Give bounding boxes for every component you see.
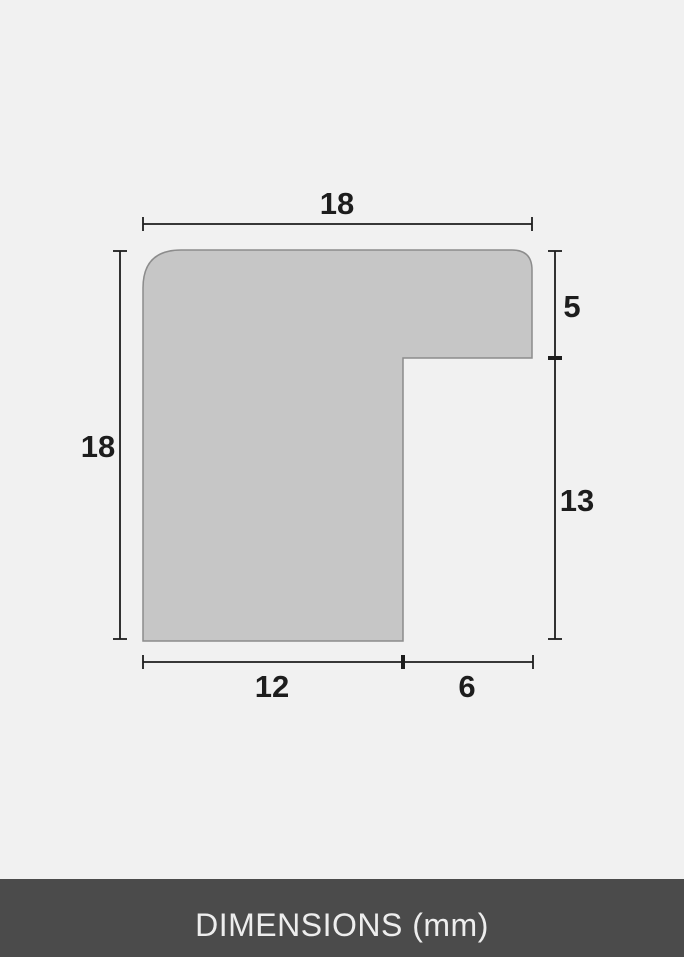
dimension-left-height: 18 (81, 251, 127, 639)
dimension-bottom: 12 6 (143, 655, 533, 704)
dim-right-lower-label: 13 (560, 483, 594, 518)
dimension-top-width: 18 (143, 186, 532, 231)
dim-bottom-left-label: 12 (255, 669, 289, 704)
dimension-right-lower: 13 (548, 358, 594, 639)
dimension-right-upper: 5 (548, 251, 581, 358)
dim-left-height-label: 18 (81, 429, 115, 464)
footer-bar: DIMENSIONS (mm) (0, 879, 684, 957)
frame-profile-diagram: 18 18 5 13 12 6 (0, 0, 684, 879)
footer-title: DIMENSIONS (mm) (195, 909, 489, 941)
dim-right-upper-label: 5 (563, 289, 580, 324)
dim-top-width-label: 18 (320, 186, 354, 221)
page-canvas: 18 18 5 13 12 6 (0, 0, 684, 957)
frame-profile-shape (143, 250, 532, 641)
dim-bottom-right-label: 6 (458, 669, 475, 704)
